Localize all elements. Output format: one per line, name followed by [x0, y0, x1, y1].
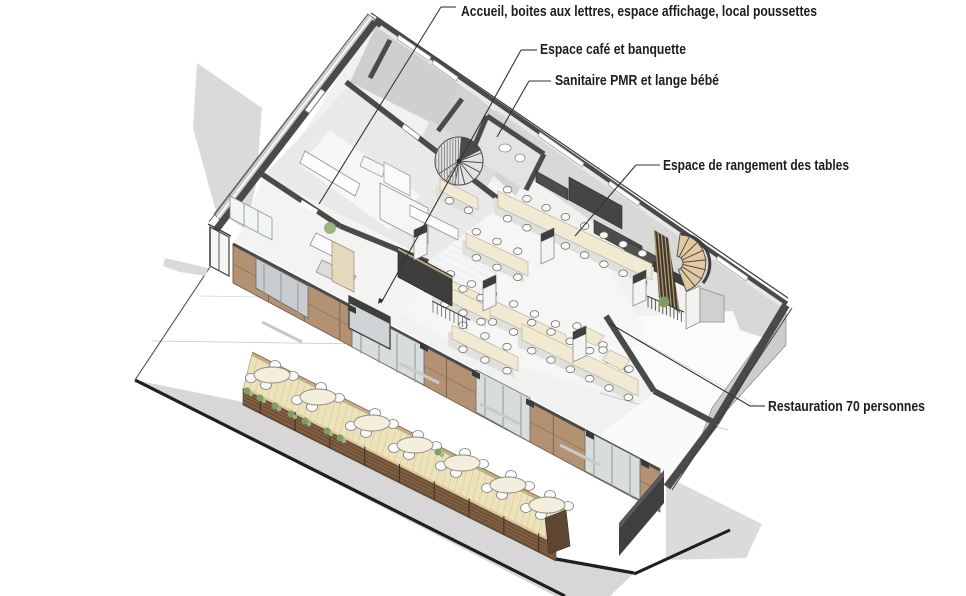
- svg-text:Accueil, boites aux lettres, e: Accueil, boites aux lettres, espace affi…: [461, 4, 817, 20]
- svg-text:Restauration 70 personnes: Restauration 70 personnes: [768, 399, 925, 415]
- svg-text:Espace de rangement des tables: Espace de rangement des tables: [663, 158, 849, 174]
- svg-text:Sanitaire PMR et lange bébé: Sanitaire PMR et lange bébé: [555, 73, 719, 89]
- svg-text:Espace café et banquette: Espace café et banquette: [540, 42, 686, 58]
